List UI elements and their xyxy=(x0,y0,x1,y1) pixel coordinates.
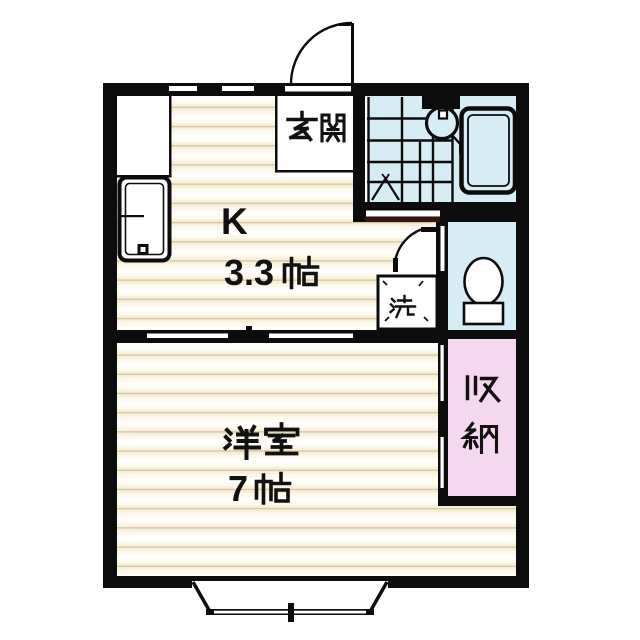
svg-text:7: 7 xyxy=(228,468,248,509)
svg-text:K: K xyxy=(221,201,248,242)
svg-text:3.3: 3.3 xyxy=(224,252,274,293)
